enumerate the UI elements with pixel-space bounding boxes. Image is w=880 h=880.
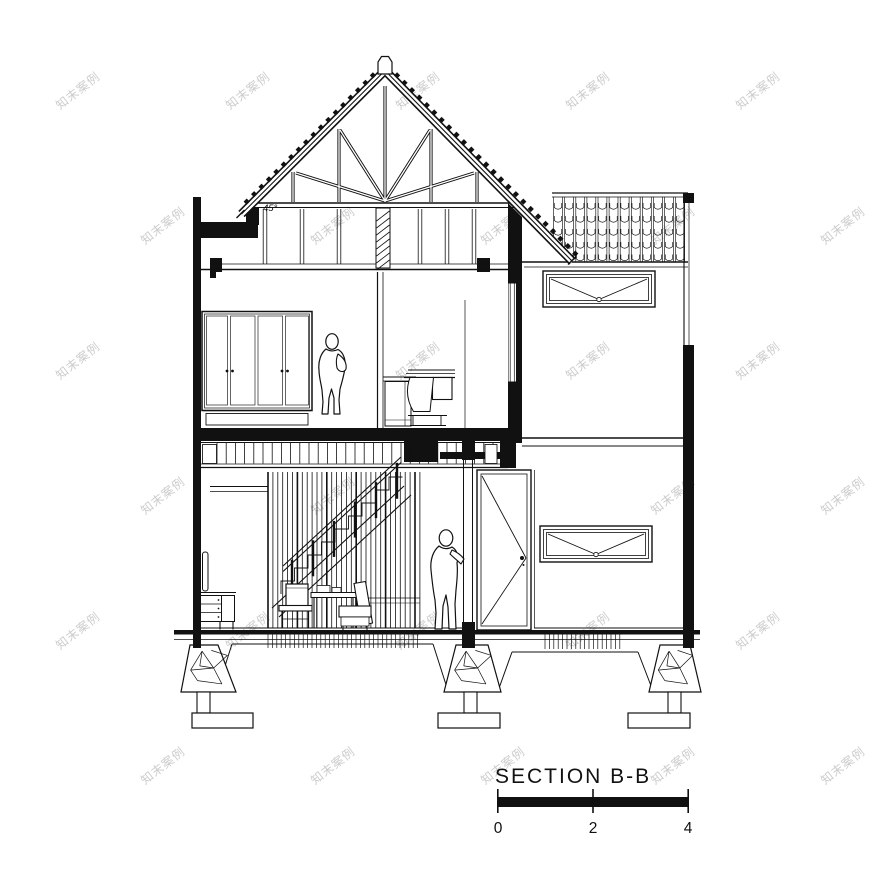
roof-finial [378,57,392,75]
door-knob [520,556,524,560]
watermark-text: 知末案例 [818,204,868,248]
footing-center [438,645,501,728]
ground-floor-room [196,457,535,630]
watermark-text: 知末案例 [648,204,698,248]
person-figure-ground [431,530,464,629]
watermark-text: 知末案例 [818,744,868,788]
watermark-text: 知末案例 [733,69,783,113]
ground-and-foundations [174,630,701,728]
scale-tick-2: 2 [589,820,598,837]
annex-lower-window [540,526,652,562]
footing-left [181,645,253,728]
drawer-cabinet [196,593,236,630]
annex-upper-window [543,271,655,307]
bathroom-fixtures [383,370,455,426]
watermark-text: 知末案例 [53,69,103,113]
drawing-title: SECTION B-B [495,765,651,788]
watermark-text: 知末案例 [138,204,188,248]
watermark-text: 知末案例 [138,474,188,518]
scale-tick-0: 0 [494,820,503,837]
footing-right [628,645,701,728]
watermark-text: 知末案例 [563,339,613,383]
rubble-stones [191,650,693,684]
scale-tick-4: 4 [684,820,693,837]
door-jamb-base [462,622,475,648]
mirror [203,552,209,591]
ground-slab-edge [174,630,700,635]
watermark-text: 知末案例 [818,474,868,518]
wall-window-slot [509,279,517,386]
watermark-text: 知末案例 [53,609,103,653]
watermark-text: 知末案例 [648,744,698,788]
door-jamb-head [462,430,475,460]
wardrobe [202,312,312,426]
watermark-text: 知末案例 [733,609,783,653]
architectural-section-sheet: 知末案例知末案例知末案例知末案例知末案例知末案例知末案例知末案例知末案例知末案例… [0,0,880,880]
roof-angle-label: 45° [263,203,278,214]
annex-door [477,470,531,630]
person-figure-upper [319,334,346,414]
left-cut-wall [193,197,201,648]
toilet [404,370,455,426]
annex-ridge-cap [683,193,694,203]
annex-wing [520,193,694,628]
watermark-text: 知末案例 [138,744,188,788]
watermark-text: 知末案例 [53,339,103,383]
truss-members [293,86,477,202]
watermark-text: 知末案例 [308,204,358,248]
attic-studs [263,209,476,264]
plinth-hatch [268,634,620,650]
hatched-post [376,208,390,268]
armchair [339,582,373,631]
watermark-text: 知末案例 [308,744,358,788]
watermark-text: 知末案例 [308,474,358,518]
annex-right-cut-wall [683,345,694,648]
roof-truss: 45° [237,57,579,265]
watermark-text: 知末案例 [563,69,613,113]
section-drawing: 知末案例知末案例知末案例知末案例知末案例知末案例知末案例知末案例知末案例知末案例… [0,0,880,880]
upper-floor-room [202,272,516,428]
watermark-text: 知末案例 [223,69,273,113]
watermark-text: 知末案例 [393,339,443,383]
watermark-text: 知末案例 [733,339,783,383]
